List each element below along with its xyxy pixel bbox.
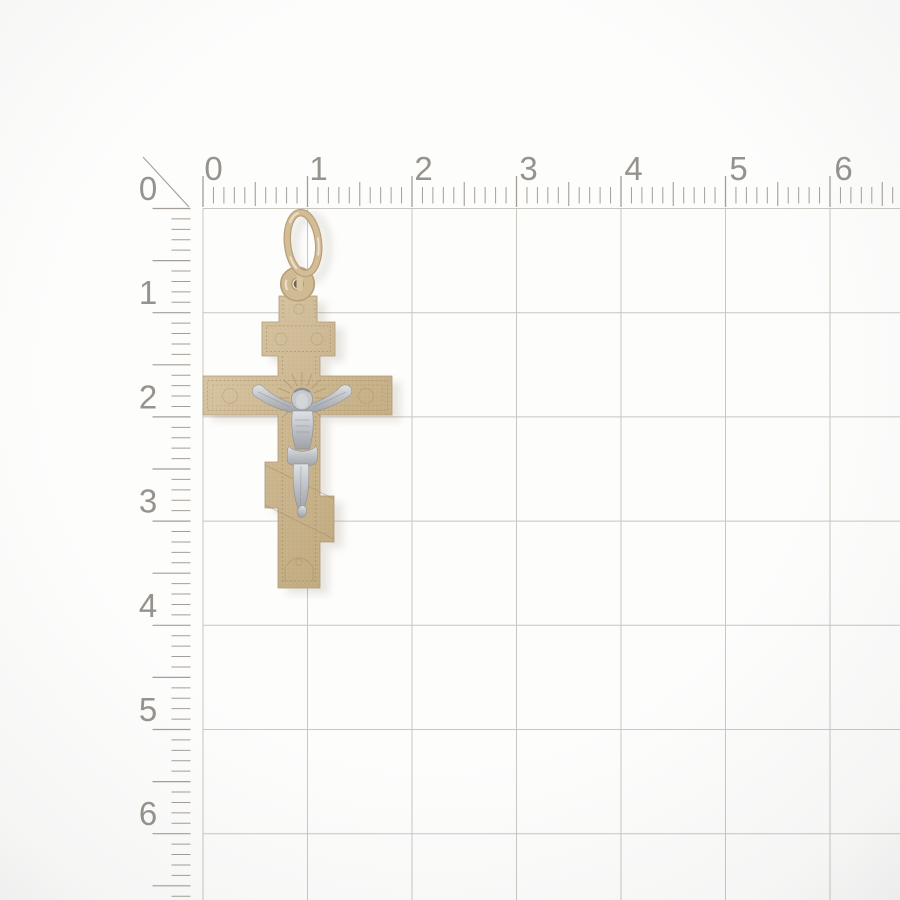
left-ruler-number-3: 3	[139, 483, 157, 520]
top-ruler-numbers: 0123456	[204, 150, 852, 187]
left-ruler-number-5: 5	[139, 691, 157, 728]
top-ruler-number-4: 4	[624, 150, 642, 187]
figure-face	[296, 394, 308, 409]
left-ruler-number-0: 0	[139, 170, 157, 207]
left-ruler-number-6: 6	[139, 795, 157, 832]
photo-scene: 0123456 0123456	[0, 0, 900, 900]
left-ruler-numbers: 0123456	[139, 170, 157, 832]
left-ruler	[153, 209, 191, 897]
top-ruler	[203, 176, 893, 207]
top-ruler-number-5: 5	[729, 150, 747, 187]
left-ruler-number-1: 1	[139, 274, 157, 311]
cross-pendant	[203, 211, 401, 594]
figure-torso	[292, 411, 313, 449]
top-ruler-number-3: 3	[519, 150, 537, 187]
top-ruler-number-0: 0	[204, 150, 222, 187]
left-ruler-number-4: 4	[139, 587, 157, 624]
top-ruler-number-1: 1	[309, 150, 327, 187]
top-ruler-number-6: 6	[834, 150, 852, 187]
measurement-grid-photo: 0123456 0123456	[0, 0, 900, 900]
top-ruler-number-2: 2	[414, 150, 432, 187]
left-ruler-number-2: 2	[139, 378, 157, 415]
